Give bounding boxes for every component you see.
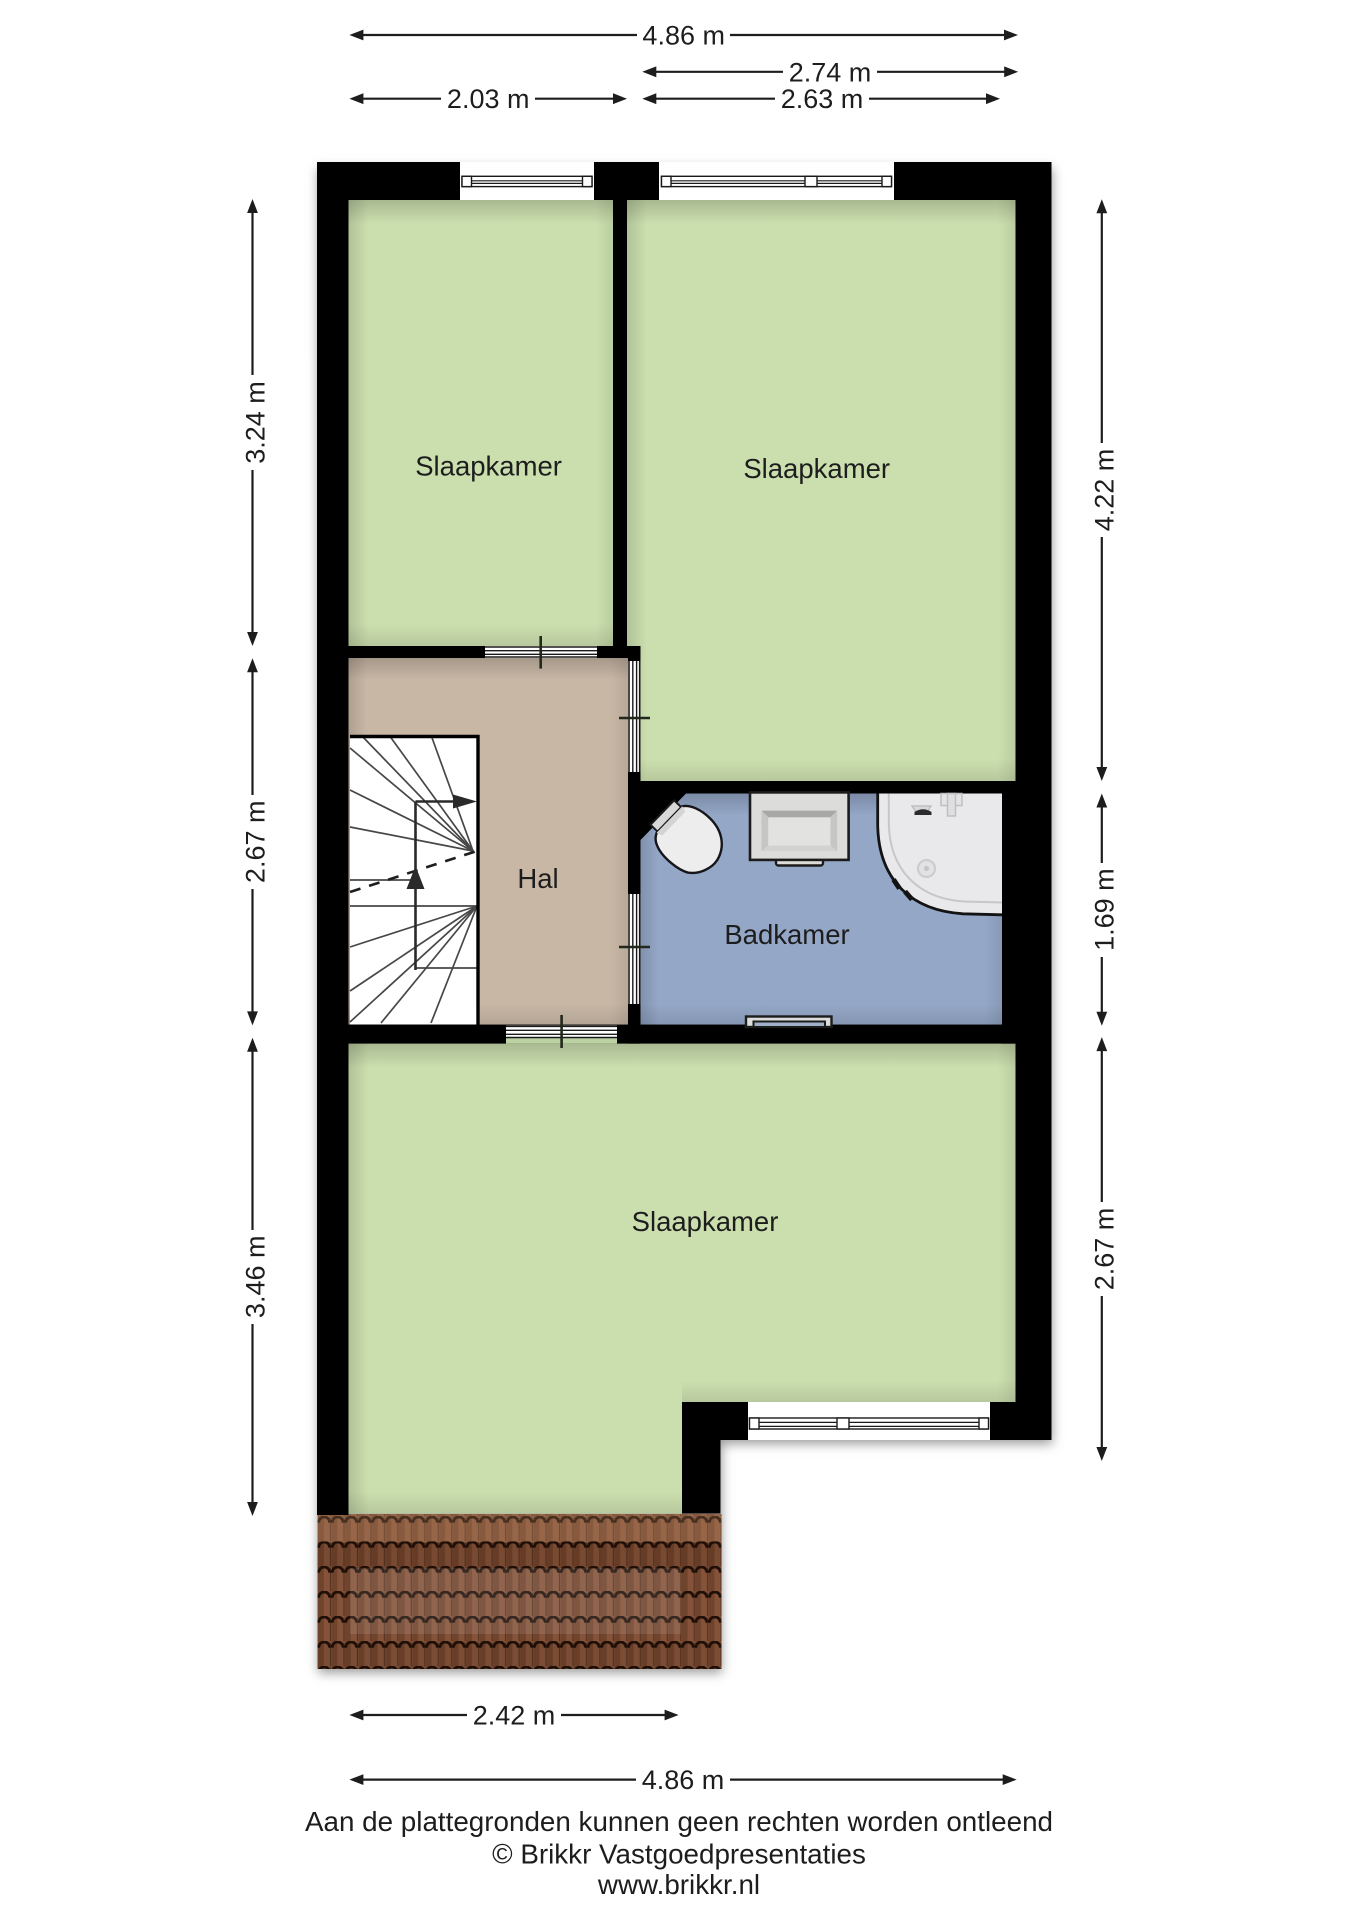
svg-text:2.03 m: 2.03 m <box>447 84 530 114</box>
svg-text:3.24 m: 3.24 m <box>241 381 271 464</box>
svg-text:3.46 m: 3.46 m <box>241 1236 271 1319</box>
svg-text:© Brikkr Vastgoedpresentaties: © Brikkr Vastgoedpresentaties <box>492 1839 866 1870</box>
svg-text:Badkamer: Badkamer <box>724 919 849 950</box>
svg-text:Slaapkamer: Slaapkamer <box>415 451 562 482</box>
svg-text:4.86 m: 4.86 m <box>642 1765 725 1795</box>
svg-text:1.69 m: 1.69 m <box>1089 868 1119 951</box>
svg-text:www.brikkr.nl: www.brikkr.nl <box>597 1869 760 1900</box>
svg-text:2.67 m: 2.67 m <box>241 801 271 884</box>
svg-text:Hal: Hal <box>517 863 558 894</box>
svg-text:2.42 m: 2.42 m <box>473 1701 556 1731</box>
svg-text:Slaapkamer: Slaapkamer <box>743 453 890 484</box>
svg-text:Slaapkamer: Slaapkamer <box>632 1206 779 1237</box>
svg-text:2.63 m: 2.63 m <box>781 84 864 114</box>
svg-text:2.74 m: 2.74 m <box>789 57 872 87</box>
svg-text:4.22 m: 4.22 m <box>1089 449 1119 532</box>
svg-text:4.86 m: 4.86 m <box>642 21 725 51</box>
svg-text:2.67 m: 2.67 m <box>1089 1208 1119 1291</box>
svg-text:Aan de plattegronden kunnen ge: Aan de plattegronden kunnen geen rechten… <box>305 1806 1053 1837</box>
